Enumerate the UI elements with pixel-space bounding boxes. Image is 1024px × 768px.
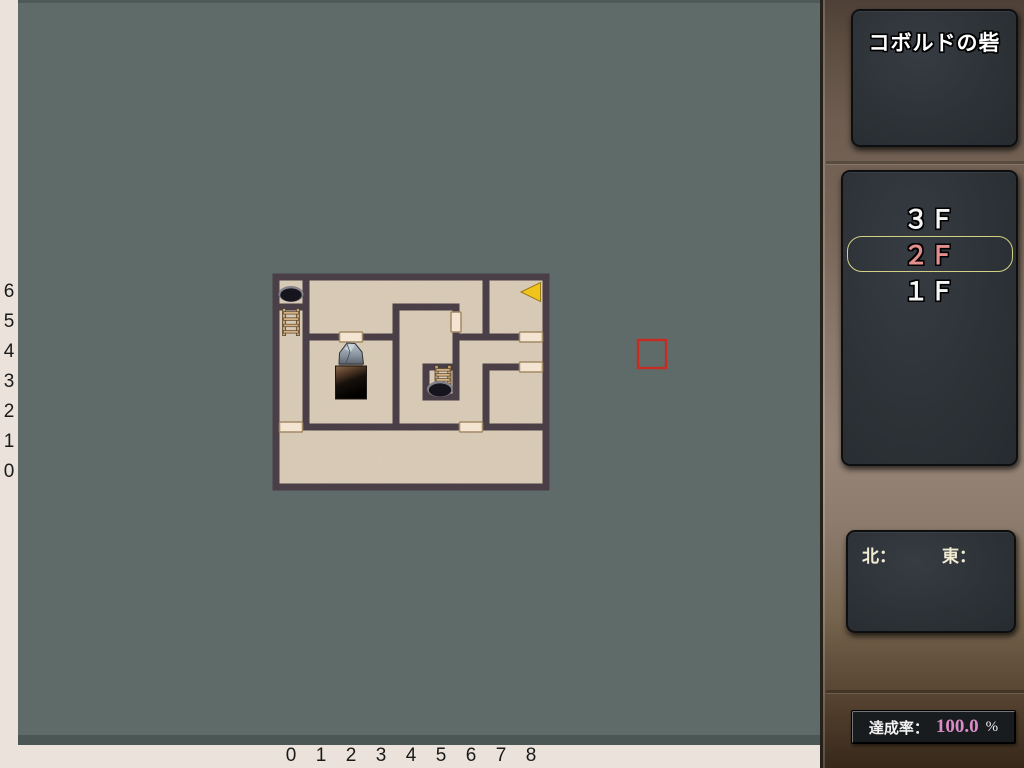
col-label: 7 [491,745,511,767]
completion-rate-panel: 達成率： 100.0 % [851,710,1016,744]
completion-rate-label: 達成率： [869,717,929,738]
dungeon-title: コボルドの砦 [853,27,1016,57]
east-exits-label: 東： [942,547,976,566]
row-label: 6 [0,281,18,303]
row-label: 2 [0,401,18,423]
exits-panel: 北：東： [846,530,1016,633]
info-sidebar: コボルドの砦 ３Ｆ ２Ｆ １Ｆ 北：東： 達成率： 100.0 % [820,0,1024,768]
stairs-down-icon [336,366,367,399]
pit-icon [279,286,304,302]
floor-item-1f[interactable]: １Ｆ [847,272,1013,308]
floor-select-panel: ３Ｆ ２Ｆ １Ｆ [841,170,1018,466]
sidebar-groove [826,161,1024,164]
col-label: 1 [311,745,331,767]
row-label: 3 [0,371,18,393]
completion-rate-value: 100.0 [936,716,979,738]
floor-item-2f[interactable]: ２Ｆ [847,236,1013,272]
sidebar-groove [826,690,1024,693]
col-axis: 012345678 [18,745,820,768]
north-exits-label: 北： [862,547,896,566]
col-label: 0 [281,745,301,767]
completion-rate-unit: % [986,719,999,736]
game-screen: 6543210 012345678 コボルドの砦 ３Ｆ ２Ｆ １Ｆ 北：東： 達… [0,0,1024,768]
floor-item-3f[interactable]: ３Ｆ [847,200,1013,236]
col-label: 2 [341,745,361,767]
col-label: 3 [371,745,391,767]
col-label: 8 [521,745,541,767]
row-label: 1 [0,431,18,453]
row-label: 0 [0,461,18,483]
col-label: 6 [461,745,481,767]
dungeon-title-panel: コボルドの砦 [851,9,1018,147]
row-axis: 6543210 [0,0,18,768]
row-label: 5 [0,311,18,333]
dungeon-map[interactable] [18,0,820,745]
col-label: 4 [401,745,421,767]
col-label: 5 [431,745,451,767]
cursor-box [638,340,666,368]
row-label: 4 [0,341,18,363]
